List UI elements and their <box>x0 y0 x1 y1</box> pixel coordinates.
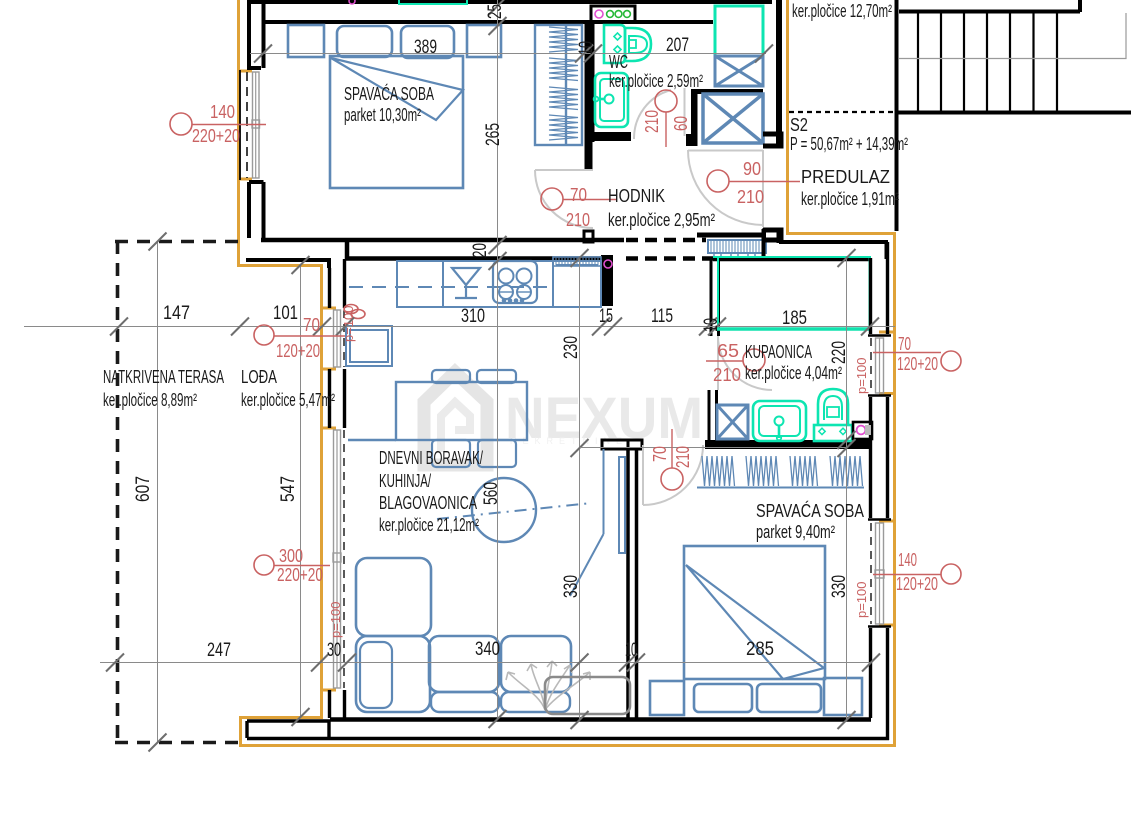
svg-text:560: 560 <box>481 482 502 505</box>
svg-text:30: 30 <box>327 640 341 661</box>
svg-text:S2: S2 <box>790 115 808 135</box>
svg-text:25: 25 <box>485 4 506 19</box>
svg-text:ker.pločice 2,95m²: ker.pločice 2,95m² <box>608 210 715 230</box>
svg-text:ker.pločice 5,47m²: ker.pločice 5,47m² <box>241 390 335 410</box>
svg-text:389: 389 <box>414 37 437 58</box>
svg-text:285: 285 <box>746 639 774 660</box>
svg-text:607: 607 <box>133 476 154 502</box>
svg-text:ker.pločice 21,12m²: ker.pločice 21,12m² <box>379 515 479 535</box>
svg-text:310: 310 <box>461 306 485 327</box>
svg-text:120+20: 120+20 <box>276 341 320 361</box>
svg-text:ker.pločice 12,70m²: ker.pločice 12,70m² <box>792 1 892 21</box>
svg-text:140: 140 <box>898 550 917 570</box>
svg-text:220+20: 220+20 <box>277 565 323 585</box>
svg-text:p=100: p=100 <box>854 357 869 394</box>
svg-text:65: 65 <box>717 341 739 361</box>
svg-text:220+20: 220+20 <box>192 126 240 146</box>
svg-text:PREDULAZ: PREDULAZ <box>801 167 890 187</box>
svg-text:210: 210 <box>713 365 741 385</box>
svg-text:210: 210 <box>673 446 693 468</box>
svg-text:140: 140 <box>210 102 235 122</box>
svg-text:220: 220 <box>829 341 850 364</box>
svg-text:p=100: p=100 <box>328 601 343 638</box>
svg-text:WC: WC <box>609 52 628 72</box>
svg-text:120+20: 120+20 <box>897 354 938 374</box>
svg-text:340: 340 <box>475 639 500 660</box>
svg-text:60: 60 <box>671 116 691 131</box>
svg-text:DNEVNI BORAVAK/: DNEVNI BORAVAK/ <box>379 448 483 468</box>
svg-text:185: 185 <box>782 308 807 329</box>
svg-text:230: 230 <box>561 336 582 359</box>
svg-text:HODNIK: HODNIK <box>608 186 665 206</box>
svg-text:15: 15 <box>599 306 613 327</box>
svg-text:330: 330 <box>561 575 582 598</box>
svg-text:ker.pločice 2,59m²: ker.pločice 2,59m² <box>609 71 703 91</box>
svg-text:10: 10 <box>576 41 597 55</box>
svg-text:70: 70 <box>650 446 670 462</box>
svg-text:LOĐA: LOĐA <box>241 367 277 387</box>
svg-text:NATKRIVENA TERASA: NATKRIVENA TERASA <box>103 367 224 387</box>
svg-text:KUHINJA/: KUHINJA/ <box>379 471 431 491</box>
svg-text:210: 210 <box>566 210 590 230</box>
svg-text:101: 101 <box>273 303 298 324</box>
svg-text:parket 10,30m²: parket 10,30m² <box>344 105 421 125</box>
svg-text:P = 50,67m² + 14,39m²: P = 50,67m² + 14,39m² <box>790 134 908 154</box>
svg-text:p=100: p=100 <box>341 305 356 342</box>
svg-text:90: 90 <box>743 159 761 179</box>
svg-text:10: 10 <box>701 318 722 332</box>
svg-text:265: 265 <box>483 123 504 146</box>
svg-text:300: 300 <box>279 546 303 566</box>
svg-text:ker.pločice 4,04m²: ker.pločice 4,04m² <box>745 363 842 383</box>
svg-text:330: 330 <box>829 575 850 598</box>
svg-text:BLAGOVAONICA: BLAGOVAONICA <box>379 493 477 513</box>
svg-text:120+20: 120+20 <box>896 574 938 594</box>
svg-text:207: 207 <box>666 35 689 56</box>
svg-text:247: 247 <box>207 640 231 661</box>
svg-text:10: 10 <box>625 640 637 661</box>
svg-text:parket 9,40m²: parket 9,40m² <box>756 522 835 542</box>
svg-text:70: 70 <box>570 185 587 205</box>
svg-text:70: 70 <box>898 334 911 354</box>
svg-text:210: 210 <box>737 187 764 207</box>
svg-text:210: 210 <box>642 110 662 133</box>
svg-text:SPAVAĆA SOBA: SPAVAĆA SOBA <box>756 500 864 521</box>
svg-text:147: 147 <box>163 303 190 324</box>
svg-text:SPAVAĆA SOBA: SPAVAĆA SOBA <box>344 83 434 104</box>
svg-text:20: 20 <box>470 243 491 258</box>
svg-text:547: 547 <box>278 476 299 502</box>
svg-text:115: 115 <box>651 306 673 327</box>
svg-text:ker.pločice 1,91m²: ker.pločice 1,91m² <box>801 189 899 209</box>
svg-text:p=100: p=100 <box>854 581 869 618</box>
svg-text:KUPAONICA: KUPAONICA <box>745 342 812 362</box>
svg-text:ker.pločice 8,89m²: ker.pločice 8,89m² <box>103 390 197 410</box>
svg-text:70: 70 <box>303 315 320 335</box>
